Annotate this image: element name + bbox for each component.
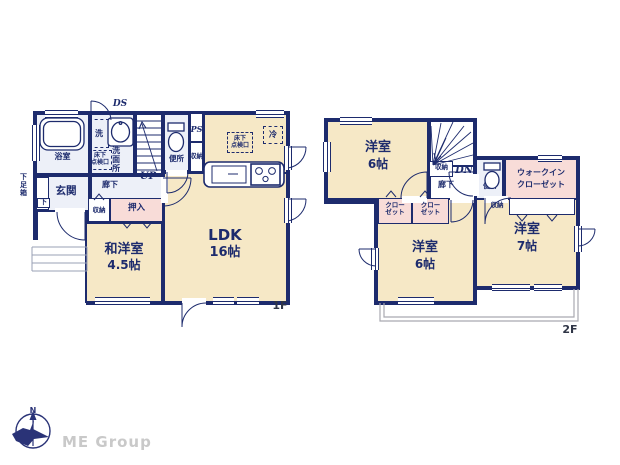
f1-futon-closet-label: 押入 xyxy=(121,204,152,213)
f2-window-bedroom-b-left xyxy=(371,248,379,270)
f1-pipe-space-label: PS xyxy=(189,125,204,134)
f1-bath-label: 浴室 xyxy=(40,153,85,162)
f2-window-bedroom-c-bottom-2 xyxy=(534,284,562,291)
f2-hallway-label: 廊下 xyxy=(432,181,460,190)
f1-ldk-garden-door-gap xyxy=(182,298,206,305)
f1-ldk-size: 16帖 xyxy=(204,246,246,260)
compass-north-label: N xyxy=(27,407,39,416)
f2-bedroom-b-door-gap xyxy=(450,196,474,203)
f1-entrance-label: 玄関 xyxy=(48,186,84,197)
f2-window-bedroom-c-right xyxy=(574,226,582,252)
f1-toilet-label: 便所 xyxy=(164,155,189,163)
f2-floor-label: 2F xyxy=(558,324,582,336)
f1-porch-notch xyxy=(29,240,86,312)
f2-window-bedroom-a-top xyxy=(340,117,372,125)
f1-window-ldk-top xyxy=(256,110,284,118)
f1-hall-storage-label: 収納 xyxy=(89,207,109,214)
f1-hallway-label: 廊下 xyxy=(96,181,124,190)
f2-stairs-storage-label: 収納 xyxy=(432,164,451,171)
f1-entrance-door-gap xyxy=(55,208,85,215)
f2-staircase xyxy=(429,120,475,167)
f2-bedroom-c-name: 洋室 xyxy=(501,223,553,237)
f2-bedroom-c-storage-label: 収納 xyxy=(486,202,508,209)
f1-storage-by-toilet-label: 収納 xyxy=(189,153,204,160)
f1-stairs-up-label: UP xyxy=(135,172,161,183)
f2-wic-label-2: クローゼット xyxy=(504,181,578,190)
f2-walkin-closet xyxy=(504,158,578,200)
f2-bedroom-b-size: 6帖 xyxy=(404,258,446,271)
f2-bedroom-c-storage xyxy=(509,198,575,215)
f1-fridge-space: 冷 xyxy=(263,126,283,144)
f1-porch xyxy=(38,212,85,240)
f1-underfloor-hatch-washroom: 床下 点検口 xyxy=(88,150,112,170)
f2-bedroom-c-size: 7帖 xyxy=(506,240,548,253)
f1-toilet-door-gap xyxy=(166,170,187,176)
f2-stairs-down-label: DN xyxy=(452,166,476,177)
f2-wic-label-1: ウォークイン xyxy=(506,169,576,178)
f1-window-bath-top xyxy=(45,110,78,118)
f1-japanese-room-size: 4.5帖 xyxy=(100,259,148,272)
f1-window-ldk-bottom-2 xyxy=(237,297,259,305)
f1-garden-door-arc xyxy=(182,303,206,327)
logo-text: ME Group xyxy=(62,433,152,451)
f1-window-ldk-right-upper xyxy=(284,146,292,170)
f1-toilet-room xyxy=(163,113,190,172)
f1-window-ldk-bottom-1 xyxy=(213,297,234,305)
f1-shoe-cabinet-label: 下足箱 xyxy=(19,173,27,197)
f1-ldk-name: LDK xyxy=(202,227,248,243)
f2-toilet-room xyxy=(475,158,504,200)
f2-closet-b-label: クロー ゼット xyxy=(414,202,447,216)
f1-floor-label: 1F xyxy=(268,300,292,312)
f2-toilet-label: 便所 xyxy=(477,183,503,191)
f1-window-bath-left xyxy=(32,125,40,161)
f1-washer-pan: 洗 xyxy=(89,119,109,148)
f1-bathroom xyxy=(35,113,90,175)
floor-plan-page: 浴室 洗 洗面所 床下 点検口 DS UP 便所 PS 収納 玄関 下足箱 下 … xyxy=(0,0,620,465)
f1-staircase xyxy=(135,113,163,175)
f1-washroom-label: 洗面所 xyxy=(111,146,120,173)
compass-icon xyxy=(12,411,50,448)
f1-shoe-cabinet-mark: 下 xyxy=(37,198,50,208)
f1-window-ldk-right-lower xyxy=(284,198,292,223)
f1-window-japanese-room-bottom xyxy=(95,297,150,305)
f2-bedroom-a-name: 洋室 xyxy=(352,141,404,155)
f2-window-bedroom-b-bottom xyxy=(398,297,434,305)
f2-closet-a-label: クロー ゼット xyxy=(380,202,410,216)
f1-duct-space-label: DS xyxy=(108,100,132,110)
f1-hall-ldk-door-gap xyxy=(161,177,168,203)
f1-underfloor-hatch-ldk: 床下 点検口 xyxy=(227,132,253,153)
f2-window-bedroom-c-bottom-1 xyxy=(492,284,530,291)
f2-bedroom-b-name: 洋室 xyxy=(399,241,451,255)
f2-window-wic-top xyxy=(538,155,562,162)
f1-japanese-room-name: 和洋室 xyxy=(97,243,151,257)
f2-window-bedroom-a-left xyxy=(323,142,331,172)
f2-bedroom-a-size: 6帖 xyxy=(357,158,399,171)
